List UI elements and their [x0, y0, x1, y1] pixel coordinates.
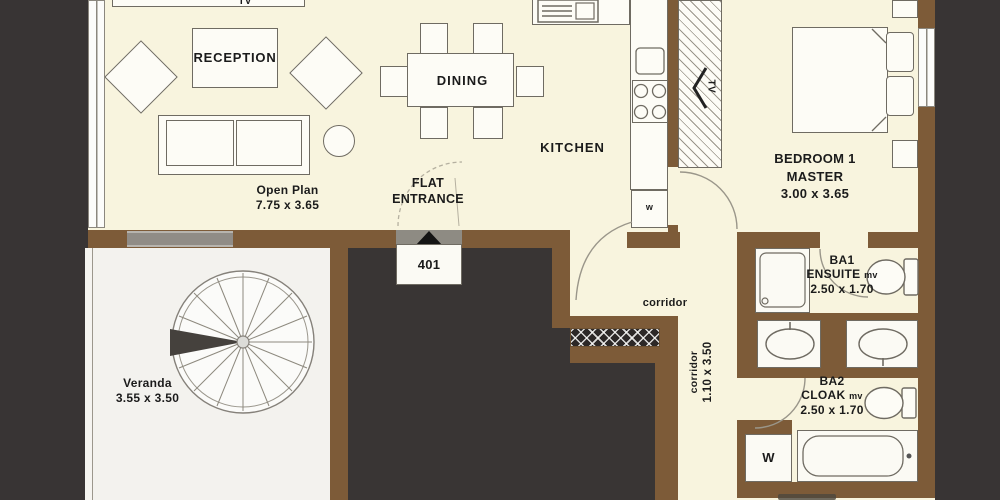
nightstand: [892, 140, 918, 168]
ba1-label: BA1 ENSUITE mv 2.50 x 1.70: [786, 253, 898, 296]
wall-segment: [737, 420, 792, 434]
window-west: [88, 0, 105, 228]
outside-void-lower: [570, 363, 655, 500]
ba1-vent-tag: mv: [864, 270, 878, 280]
cutoff-text: [778, 494, 836, 500]
nightstand: [892, 0, 918, 18]
veranda-label: Veranda 3.55 x 3.50: [100, 376, 195, 406]
window-bedroom-east: [918, 28, 935, 107]
wall-segment: [918, 0, 935, 28]
flat-entrance-label: FLAT ENTRANCE: [372, 176, 484, 207]
wall-segment: [660, 328, 678, 347]
dining-chair: [380, 66, 408, 97]
wall-segment: [552, 248, 570, 316]
reception-label: RECEPTION: [175, 50, 295, 66]
dining-chair: [473, 107, 503, 139]
tv-bedroom-label: TV: [704, 66, 717, 106]
kitchen-hob: [632, 80, 668, 123]
wall-segment: [570, 347, 678, 363]
wall-segment: [918, 107, 935, 482]
dining-chair: [516, 66, 544, 97]
dining-label: DINING: [415, 73, 510, 89]
bathtub: [797, 430, 918, 482]
bed: [792, 27, 888, 133]
tv-unit-lounge: [112, 0, 305, 7]
pillow: [886, 32, 914, 72]
sofa-seat-left: [166, 120, 234, 166]
veranda-edge: [85, 248, 93, 500]
wall-segment: [462, 230, 570, 248]
open-plan-label: Open Plan 7.75 x 3.65: [240, 183, 335, 213]
washer-kitchen-label: w: [631, 202, 668, 213]
corridor-vertical-label: corridor 1.10 x 3.50: [688, 292, 728, 452]
dining-chair: [420, 23, 448, 54]
vanity-ba2: [846, 320, 918, 368]
ba2-label: BA2 CLOAK mv 2.50 x 1.70: [776, 374, 888, 417]
dining-chair: [473, 23, 503, 54]
wall-segment: [668, 225, 678, 248]
vanity-ba1: [757, 320, 821, 368]
wall-segment: [348, 230, 396, 248]
pillow: [886, 76, 914, 116]
wall-segment: [330, 230, 348, 500]
ba2-vent-tag: mv: [849, 391, 863, 401]
wall-segment: [737, 482, 935, 498]
wall-segment: [868, 232, 918, 248]
bedroom1-label: BEDROOM 1 MASTER 3.00 x 3.65: [740, 150, 890, 203]
wall-segment: [655, 363, 678, 500]
kitchen-label: KITCHEN: [525, 140, 620, 156]
dining-chair: [420, 107, 448, 139]
sofa-seat-right: [236, 120, 302, 166]
washer-ba2-label: W: [745, 450, 792, 466]
veranda-glass-door: [127, 231, 233, 247]
side-table-round: [323, 125, 355, 157]
floor-plan: TV RECEPTION DINING KITCHEN Open Plan 7.…: [0, 0, 1000, 500]
communal-stairs: [570, 328, 660, 347]
wall-segment: [668, 0, 678, 167]
outside-void-upper: [348, 248, 570, 500]
veranda-floor: [93, 248, 330, 500]
wall-segment: [552, 316, 678, 328]
kitchen-counter-top: [532, 0, 630, 25]
unit-number: 401: [396, 257, 462, 273]
tv-lounge-label: TV: [230, 0, 260, 9]
